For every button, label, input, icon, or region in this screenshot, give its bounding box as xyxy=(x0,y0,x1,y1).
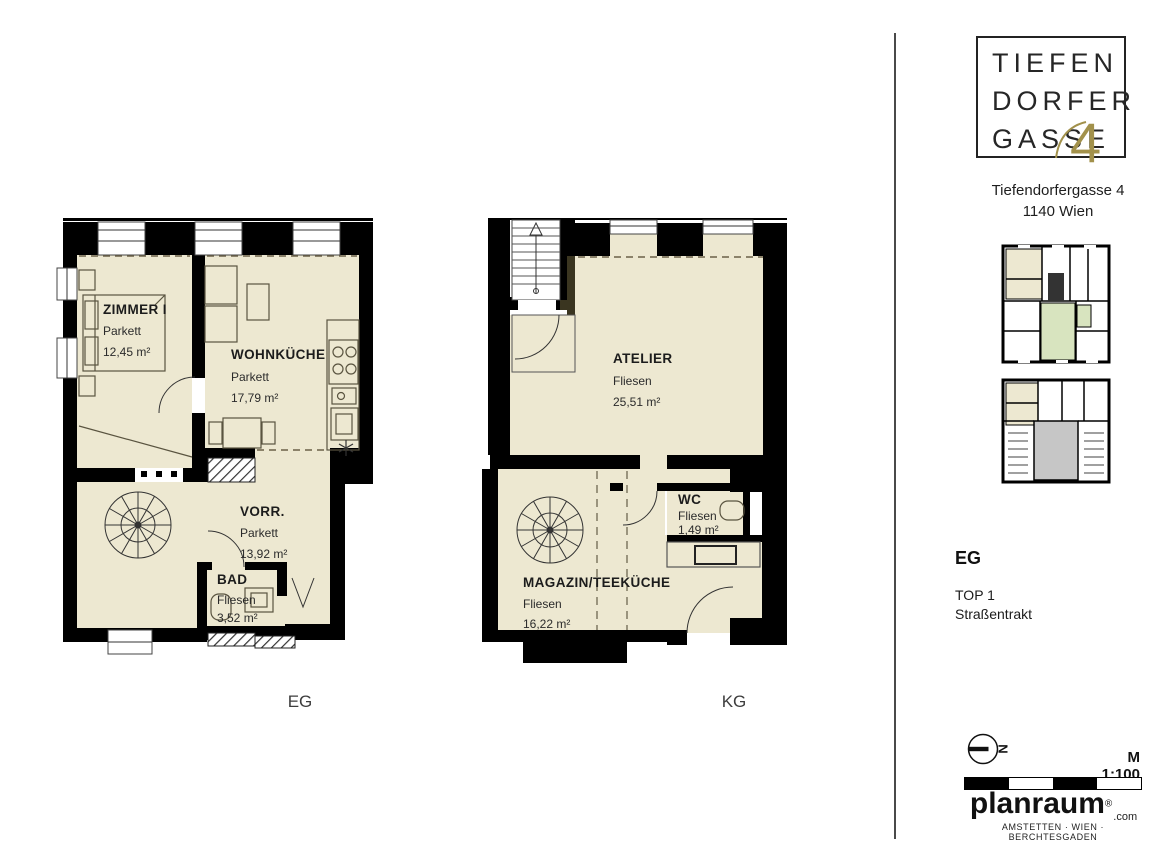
sheet-divider xyxy=(894,33,896,839)
room-floor-label: Fliesen xyxy=(523,597,562,611)
unit-tract: Straßentrakt xyxy=(955,605,1032,624)
room-area-label: 17,79 m² xyxy=(231,391,278,405)
address-line: 1140 Wien xyxy=(972,201,1144,222)
room-name-label: ATELIER xyxy=(613,351,673,366)
unit-number: TOP 1 xyxy=(955,586,1032,605)
highlighted-unit xyxy=(1006,383,1038,425)
floorplan-sheet: { "branding": { "logo_line1": "TIEFEN", … xyxy=(0,0,1171,856)
sidebar-floor-label: EG xyxy=(955,548,981,569)
room-floor-label: Fliesen xyxy=(613,374,652,388)
room-floor-label: Fliesen xyxy=(217,593,256,607)
sidebar-unit-block: TOP 1 Straßentrakt xyxy=(955,586,1032,624)
eg-floorplan: ZIMMER I Parkett 12,45 m² WOHNKÜCHE Park… xyxy=(55,210,395,680)
highlighted-unit xyxy=(1006,249,1042,299)
courtyard xyxy=(1034,421,1078,480)
room-name-label: VORR. xyxy=(240,504,285,519)
north-arrow-icon: N xyxy=(962,726,1018,772)
stair-core xyxy=(1048,273,1064,301)
overview-plan-upper xyxy=(1000,243,1112,365)
room-floor-label: Parkett xyxy=(240,526,279,540)
planraum-logo: planraum®.com AMSTETTEN · WIEN · BERCHTE… xyxy=(962,789,1144,842)
planraum-com: .com xyxy=(1113,811,1137,823)
project-address: Tiefendorfergasse 4 1140 Wien xyxy=(972,180,1144,222)
room-area-label: 13,92 m² xyxy=(240,547,287,561)
planraum-locations: AMSTETTEN · WIEN · BERCHTESGADEN xyxy=(962,822,1144,842)
overview-plan-lower xyxy=(1000,377,1112,485)
kg-plan-caption: KG xyxy=(712,692,756,712)
kg-floorplan: ATELIER Fliesen 25,51 m² WC Fliesen 1,49… xyxy=(480,215,870,685)
room-floor-label: Fliesen xyxy=(678,509,717,523)
room-floor-label: Parkett xyxy=(231,370,270,384)
room-name-label: ZIMMER I xyxy=(103,302,167,317)
north-label: N xyxy=(996,744,1011,753)
project-logo: TIEFEN DORFER GASSE xyxy=(976,36,1126,158)
spiral-staircase xyxy=(517,497,583,563)
address-line: Tiefendorfergasse 4 xyxy=(972,180,1144,201)
room-name-label: WC xyxy=(678,492,701,507)
eg-floor-areas xyxy=(77,228,359,628)
room-area-label: 25,51 m² xyxy=(613,395,660,409)
room-area-label: 3,52 m² xyxy=(217,611,258,625)
planraum-brand: planraum xyxy=(970,787,1105,820)
logo-line: TIEFEN xyxy=(992,44,1124,82)
room-area-label: 16,22 m² xyxy=(523,617,570,631)
spiral-staircase xyxy=(105,492,171,558)
straight-staircase xyxy=(512,220,560,313)
registered-mark: ® xyxy=(1105,799,1112,810)
room-name-label: MAGAZIN/TEEKÜCHE xyxy=(523,575,670,590)
logo-line: DORFER xyxy=(992,82,1124,120)
logo-number: 4 xyxy=(1070,110,1101,175)
room-name-label: BAD xyxy=(217,572,247,587)
room-area-label: 1,49 m² xyxy=(678,523,719,537)
eg-plan-caption: EG xyxy=(278,692,322,712)
room-floor-label: Parkett xyxy=(103,324,142,338)
room-name-label: WOHNKÜCHE xyxy=(231,347,325,362)
room-area-label: 12,45 m² xyxy=(103,345,150,359)
